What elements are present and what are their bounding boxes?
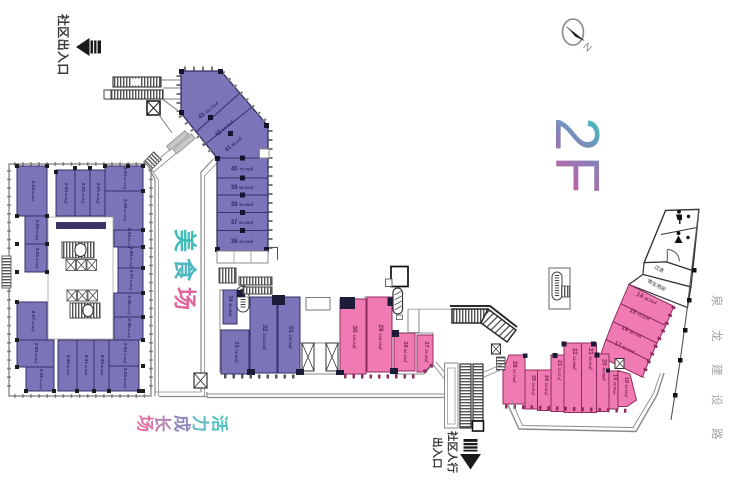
svg-text:2-41 117.15㎡: 2-41 117.15㎡ — [123, 167, 128, 189]
svg-text:2-31 42.35㎡: 2-31 42.35㎡ — [84, 355, 89, 376]
svg-text:2-25 42.26㎡: 2-25 42.26㎡ — [35, 220, 40, 241]
svg-text:2-26 40.09㎡: 2-26 40.09㎡ — [35, 248, 40, 269]
svg-text:场: 场 — [172, 287, 198, 310]
svg-text:龙: 龙 — [710, 330, 723, 342]
svg-text:长: 长 — [153, 415, 173, 433]
svg-text:2-38 42.12㎡: 2-38 42.12㎡ — [129, 247, 134, 268]
svg-text:出入口: 出入口 — [431, 437, 444, 469]
svg-text:活: 活 — [210, 415, 230, 432]
svg-text:2-21 39.06㎡: 2-21 39.06㎡ — [96, 183, 101, 204]
svg-text:2F: 2F — [542, 117, 611, 197]
svg-text:2-30 39.46㎡: 2-30 39.46㎡ — [66, 355, 71, 376]
svg-text:美: 美 — [172, 229, 198, 252]
svg-text:40 75.76㎡: 40 75.76㎡ — [231, 166, 253, 173]
svg-text:设: 设 — [710, 394, 723, 406]
svg-text:31 107.5㎡: 31 107.5㎡ — [287, 326, 294, 349]
svg-text:成: 成 — [172, 415, 192, 432]
svg-text:2-33 56.64㎡: 2-33 56.64㎡ — [123, 368, 128, 389]
svg-text:食: 食 — [172, 258, 198, 282]
svg-text:力: 力 — [191, 415, 211, 432]
svg-text:36 35.02㎡: 36 35.02㎡ — [231, 238, 253, 245]
svg-text:场: 场 — [135, 415, 154, 432]
svg-text:30 101.6㎡: 30 101.6㎡ — [351, 326, 358, 349]
svg-text:路: 路 — [710, 428, 724, 440]
svg-text:2-35 42.2㎡: 2-35 42.2㎡ — [127, 319, 132, 338]
svg-text:2-40 117.15㎡: 2-40 117.15㎡ — [123, 199, 128, 221]
svg-text:2-28 42.08㎡: 2-28 42.08㎡ — [34, 343, 39, 364]
svg-text:2-32 39.49㎡: 2-32 39.49㎡ — [100, 355, 105, 376]
svg-text:泉: 泉 — [710, 295, 724, 307]
svg-text:2-34 57.35㎡: 2-34 57.35㎡ — [123, 343, 128, 364]
svg-text:2-27 40.09㎡: 2-27 40.09㎡ — [31, 311, 36, 332]
svg-text:社区出入口: 社区出入口 — [56, 13, 71, 76]
svg-text:2-39 69.17㎡: 2-39 69.17㎡ — [127, 228, 132, 249]
svg-text:2-37 41.84㎡: 2-37 41.84㎡ — [129, 270, 134, 291]
svg-text:2-29 41.76㎡: 2-29 41.76㎡ — [39, 369, 44, 390]
svg-text:2-23 39.56㎡: 2-23 39.56㎡ — [64, 183, 69, 204]
svg-text:2-22 42.35㎡: 2-22 42.35㎡ — [81, 183, 86, 204]
svg-text:37 55.49㎡: 37 55.49㎡ — [231, 219, 253, 226]
svg-text:38 55.49㎡: 38 55.49㎡ — [231, 201, 253, 208]
svg-text:2-36 42.2㎡: 2-36 42.2㎡ — [127, 296, 132, 315]
svg-text:29 105.16㎡: 29 105.16㎡ — [377, 324, 384, 349]
svg-text:39 56.87㎡: 39 56.87㎡ — [231, 184, 253, 191]
svg-text:社区人行: 社区人行 — [446, 430, 459, 473]
svg-text:建: 建 — [710, 364, 724, 376]
svg-text:2-24 36.62㎡: 2-24 36.62㎡ — [31, 181, 36, 202]
svg-text:32 104.04㎡: 32 104.04㎡ — [261, 324, 268, 349]
